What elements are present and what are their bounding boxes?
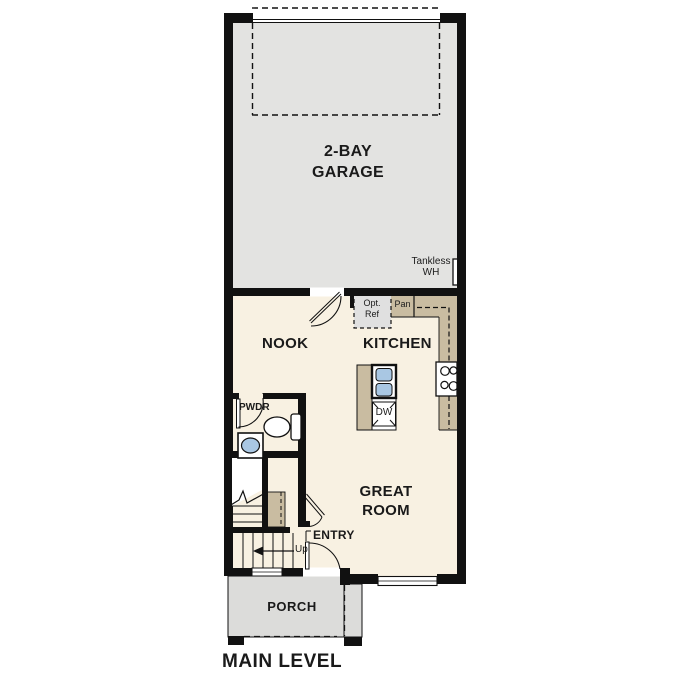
powder-sink (238, 433, 263, 458)
floor-plan-drawing (0, 0, 687, 687)
tankless-wh-label: Tankless WH (407, 256, 455, 278)
kitchen-label: KITCHEN (363, 335, 432, 352)
great-room-window (378, 577, 437, 586)
garage-label: 2-BAY GARAGE (306, 141, 390, 183)
dishwasher-label: DW (372, 407, 396, 418)
powder-label: PWDR (239, 402, 270, 413)
great-room-label: GREAT ROOM (350, 482, 422, 520)
garage-door (252, 12, 440, 23)
stove (436, 362, 458, 396)
plan-title: MAIN LEVEL (222, 651, 342, 673)
island-sink (372, 365, 396, 398)
entry-label: ENTRY (313, 528, 355, 542)
floor-plan: 2-BAY GARAGE Tankless WH NOOK KITCHEN Op… (0, 0, 687, 687)
stair-window (252, 568, 282, 576)
porch-label: PORCH (259, 599, 325, 614)
opt-ref-label: Opt. Ref (357, 298, 387, 320)
nook-label: NOOK (262, 335, 308, 352)
under-stair-closet (266, 492, 285, 527)
pantry-label: Pan (391, 299, 414, 309)
stairs-up-label: Up (295, 544, 308, 555)
